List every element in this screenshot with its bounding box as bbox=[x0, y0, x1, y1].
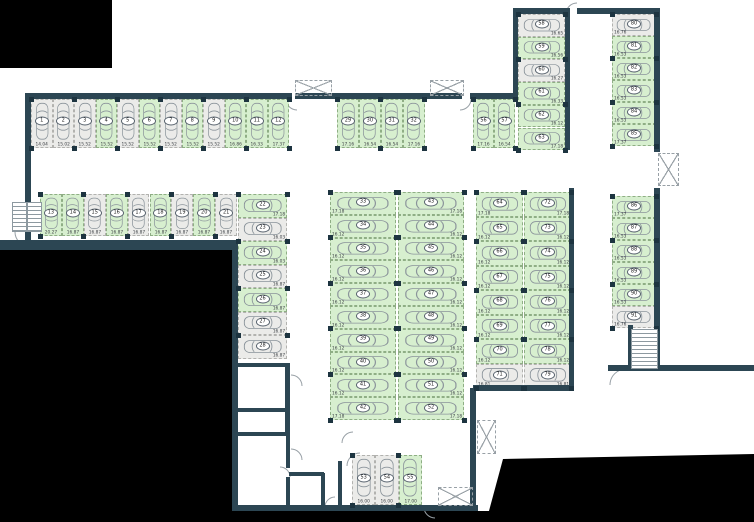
space-dimension: 16.53 bbox=[614, 74, 626, 79]
space-number: 57 bbox=[498, 117, 512, 126]
parking-space-91[interactable]: 9116.76 bbox=[612, 306, 656, 328]
structural-column bbox=[72, 97, 77, 102]
space-dimension: 16.12 bbox=[450, 232, 462, 237]
structural-column bbox=[396, 503, 401, 508]
parking-space-78[interactable]: 7816.12 bbox=[524, 339, 571, 364]
parking-space-28[interactable]: 2816.87 bbox=[238, 335, 287, 359]
parking-space-73[interactable]: 7316.12 bbox=[524, 217, 571, 242]
space-dimension: 16.87 bbox=[219, 230, 233, 235]
stairs-icon bbox=[12, 202, 27, 232]
parking-space-24[interactable]: 2416.03 bbox=[238, 241, 287, 265]
wall bbox=[654, 8, 660, 152]
parking-space-77[interactable]: 7716.12 bbox=[524, 315, 571, 340]
parking-space-43[interactable]: 4317.18 bbox=[398, 192, 464, 215]
structural-column bbox=[654, 12, 659, 17]
parking-space-32[interactable]: 3217.16 bbox=[403, 99, 425, 148]
parking-space-3[interactable]: 315.52 bbox=[74, 99, 96, 148]
space-dimension: 16.87 bbox=[273, 282, 285, 287]
parking-space-8[interactable]: 815.52 bbox=[182, 99, 204, 148]
space-dimension: 17.18 bbox=[273, 211, 285, 216]
structural-column bbox=[610, 282, 615, 287]
space-number: 70 bbox=[493, 346, 507, 355]
parking-space-1[interactable]: 114.04 bbox=[31, 99, 53, 148]
space-dimension: 17.18 bbox=[450, 209, 462, 214]
parking-space-29[interactable]: 2917.16 bbox=[337, 99, 359, 148]
space-number: 50 bbox=[424, 357, 438, 366]
space-number: 23 bbox=[256, 224, 270, 233]
wall bbox=[285, 363, 290, 436]
space-dimension: 17.16 bbox=[406, 142, 420, 147]
structural-column bbox=[287, 146, 292, 151]
structural-column bbox=[569, 337, 574, 342]
space-dimension: 15.52 bbox=[99, 142, 113, 147]
space-number: 4 bbox=[99, 117, 113, 126]
structural-column bbox=[350, 453, 355, 458]
parking-space-34[interactable]: 3416.12 bbox=[330, 215, 396, 238]
space-dimension: 16.00 bbox=[379, 499, 394, 504]
parking-space-27[interactable]: 2716.87 bbox=[238, 312, 287, 336]
parking-space-60[interactable]: 6016.27 bbox=[518, 59, 565, 82]
parking-space-4[interactable]: 415.52 bbox=[96, 99, 118, 148]
parking-space-64[interactable]: 6417.18 bbox=[476, 192, 523, 217]
parking-space-13[interactable]: 1320.27 bbox=[40, 194, 62, 236]
structural-column bbox=[474, 386, 479, 391]
structural-column bbox=[396, 453, 401, 458]
space-dimension: 16.87 bbox=[273, 352, 285, 357]
space-number: 13 bbox=[44, 209, 58, 218]
space-dimension: 16.12 bbox=[332, 232, 344, 237]
parking-space-21[interactable]: 2116.87 bbox=[215, 194, 237, 236]
parking-space-35[interactable]: 3516.12 bbox=[330, 238, 396, 261]
structural-column bbox=[522, 386, 527, 391]
space-number: 61 bbox=[535, 88, 549, 97]
wall bbox=[577, 8, 660, 14]
parking-space-16[interactable]: 1616.87 bbox=[106, 194, 128, 236]
parking-space-82[interactable]: 8216.53 bbox=[612, 58, 656, 80]
space-dimension: 16.12 bbox=[557, 284, 569, 289]
space-number: 27 bbox=[256, 318, 270, 327]
floor-plan: 114.04215.02315.52415.52515.52615.52715.… bbox=[0, 0, 754, 522]
structural-column bbox=[236, 286, 241, 291]
space-dimension: 16.53 bbox=[614, 118, 626, 123]
space-dimension: 16.54 bbox=[498, 142, 512, 147]
space-number: 6 bbox=[142, 117, 156, 126]
parking-space-7[interactable]: 715.52 bbox=[160, 99, 182, 148]
space-number: 49 bbox=[424, 335, 438, 344]
parking-space-48[interactable]: 4816.12 bbox=[398, 306, 464, 329]
parking-space-76[interactable]: 7616.12 bbox=[524, 290, 571, 315]
structural-column bbox=[328, 418, 333, 423]
space-number: 71 bbox=[493, 370, 507, 379]
structural-column bbox=[522, 190, 527, 195]
structural-column bbox=[462, 281, 467, 286]
space-dimension: 17.16 bbox=[477, 142, 491, 147]
space-number: 31 bbox=[385, 117, 399, 126]
parking-space-81[interactable]: 8116.53 bbox=[612, 36, 656, 58]
parking-space-6[interactable]: 615.52 bbox=[139, 99, 161, 148]
space-number: 25 bbox=[256, 271, 270, 280]
parking-space-22[interactable]: 2217.18 bbox=[238, 194, 287, 218]
space-dimension: 16.12 bbox=[478, 284, 490, 289]
space-number: 81 bbox=[627, 42, 641, 51]
space-number: 28 bbox=[256, 341, 270, 350]
space-number: 22 bbox=[256, 200, 270, 209]
shaft-icon bbox=[295, 80, 332, 96]
structural-column bbox=[516, 12, 521, 17]
structural-column bbox=[462, 235, 467, 240]
space-dimension: 16.12 bbox=[332, 300, 344, 305]
parking-space-83[interactable]: 8316.53 bbox=[612, 80, 656, 102]
structural-column bbox=[201, 97, 206, 102]
structural-column bbox=[335, 146, 340, 151]
space-number: 3 bbox=[78, 117, 92, 126]
structural-column bbox=[328, 372, 333, 377]
door-arc bbox=[460, 99, 471, 110]
structural-column bbox=[462, 190, 467, 195]
space-dimension: 16.87 bbox=[66, 230, 80, 235]
parking-space-84[interactable]: 8416.53 bbox=[612, 102, 656, 124]
space-dimension: 15.02 bbox=[56, 142, 70, 147]
parking-space-80[interactable]: 8016.76 bbox=[612, 14, 656, 36]
parking-space-45[interactable]: 4516.12 bbox=[398, 238, 464, 261]
space-number: 46 bbox=[424, 266, 438, 275]
parking-space-30[interactable]: 3016.54 bbox=[359, 99, 381, 148]
space-number: 51 bbox=[424, 380, 438, 389]
space-number: 14 bbox=[66, 209, 80, 218]
structural-column bbox=[244, 97, 249, 102]
parking-space-38[interactable]: 3816.12 bbox=[330, 306, 396, 329]
space-number: 7 bbox=[164, 117, 178, 126]
structural-column bbox=[654, 144, 659, 149]
parking-space-54[interactable]: 5416.00 bbox=[375, 455, 398, 505]
space-number: 59 bbox=[535, 42, 549, 51]
space-number: 26 bbox=[256, 294, 270, 303]
space-dimension: 16.76 bbox=[614, 322, 626, 327]
door-arc bbox=[291, 375, 302, 386]
structural-column bbox=[350, 503, 355, 508]
parking-space-87[interactable]: 8716.53 bbox=[612, 218, 656, 240]
space-dimension: 16.54 bbox=[385, 142, 399, 147]
space-dimension: 17.37 bbox=[614, 212, 626, 217]
structural-column bbox=[328, 190, 333, 195]
structural-column bbox=[610, 100, 615, 105]
parking-space-52[interactable]: 5217.18 bbox=[398, 397, 464, 420]
structural-column bbox=[462, 418, 467, 423]
space-number: 20 bbox=[197, 209, 211, 218]
parking-space-14[interactable]: 1416.87 bbox=[62, 194, 84, 236]
wall bbox=[237, 363, 287, 367]
space-dimension: 16.12 bbox=[450, 254, 462, 259]
door-arc bbox=[610, 369, 626, 385]
space-number: 64 bbox=[493, 199, 507, 208]
structural-column bbox=[569, 190, 574, 195]
shaft-icon bbox=[658, 153, 679, 186]
structural-column bbox=[38, 192, 43, 197]
space-dimension: 16.56 bbox=[551, 53, 563, 58]
structural-column bbox=[115, 97, 120, 102]
structural-column bbox=[654, 56, 659, 61]
parking-space-67[interactable]: 6716.12 bbox=[476, 266, 523, 291]
structural-column bbox=[610, 12, 615, 17]
space-number: 2 bbox=[56, 117, 70, 126]
parking-space-49[interactable]: 4916.12 bbox=[398, 329, 464, 352]
structural-column bbox=[72, 146, 77, 151]
space-dimension: 16.12 bbox=[557, 333, 569, 338]
parking-space-59[interactable]: 5916.56 bbox=[518, 37, 565, 60]
structural-column bbox=[158, 146, 163, 151]
structural-column bbox=[244, 146, 249, 151]
wall bbox=[513, 8, 518, 99]
parking-space-44[interactable]: 4416.12 bbox=[398, 215, 464, 238]
parking-space-88[interactable]: 8816.53 bbox=[612, 240, 656, 262]
space-number: 39 bbox=[356, 335, 370, 344]
parking-space-42[interactable]: 4217.18 bbox=[330, 397, 396, 420]
parking-space-68[interactable]: 6816.12 bbox=[476, 290, 523, 315]
parking-space-53[interactable]: 5316.00 bbox=[352, 455, 375, 505]
parking-space-15[interactable]: 1516.87 bbox=[84, 194, 106, 236]
space-number: 55 bbox=[403, 473, 417, 482]
space-number: 8 bbox=[185, 117, 199, 126]
space-dimension: 16.12 bbox=[450, 277, 462, 282]
parking-space-75[interactable]: 7516.12 bbox=[524, 266, 571, 291]
space-dimension: 16.54 bbox=[363, 142, 377, 147]
void-area bbox=[486, 454, 754, 522]
structural-column bbox=[236, 333, 241, 338]
parking-space-26[interactable]: 2616.87 bbox=[238, 288, 287, 312]
parking-space-9[interactable]: 915.52 bbox=[203, 99, 225, 148]
space-number: 84 bbox=[627, 108, 641, 117]
structural-column bbox=[516, 57, 521, 62]
parking-space-18[interactable]: 1816.87 bbox=[150, 194, 172, 236]
space-number: 78 bbox=[541, 346, 555, 355]
parking-space-25[interactable]: 2516.87 bbox=[238, 265, 287, 289]
parking-space-51[interactable]: 5116.12 bbox=[398, 374, 464, 397]
structural-column bbox=[236, 192, 241, 197]
parking-space-57[interactable]: 5716.54 bbox=[494, 99, 515, 148]
structural-column bbox=[462, 372, 467, 377]
space-dimension: 16.03 bbox=[273, 258, 285, 263]
space-dimension: 20.27 bbox=[44, 230, 58, 235]
space-dimension: 16.53 bbox=[614, 278, 626, 283]
parking-space-17[interactable]: 1716.87 bbox=[128, 194, 150, 236]
structural-column bbox=[335, 97, 340, 102]
space-number: 87 bbox=[627, 224, 641, 233]
space-number: 10 bbox=[228, 117, 242, 126]
space-dimension: 16.12 bbox=[332, 277, 344, 282]
parking-space-85[interactable]: 8517.37 bbox=[612, 124, 656, 146]
parking-space-56[interactable]: 5617.16 bbox=[473, 99, 494, 148]
parking-space-70[interactable]: 7016.12 bbox=[476, 339, 523, 364]
parking-space-39[interactable]: 3916.12 bbox=[330, 329, 396, 352]
space-number: 76 bbox=[541, 297, 555, 306]
structural-column bbox=[328, 326, 333, 331]
structural-column bbox=[396, 372, 401, 377]
structural-column bbox=[471, 146, 476, 151]
space-dimension: 16.12 bbox=[332, 368, 344, 373]
structural-column bbox=[516, 148, 521, 153]
space-number: 37 bbox=[356, 289, 370, 298]
space-dimension: 16.12 bbox=[557, 357, 569, 362]
space-dimension: 16.12 bbox=[450, 368, 462, 373]
parking-space-72[interactable]: 7217.18 bbox=[524, 192, 571, 217]
space-dimension: 16.33 bbox=[250, 142, 264, 147]
space-dimension: 17.18 bbox=[332, 209, 344, 214]
space-dimension: 16.12 bbox=[557, 308, 569, 313]
space-number: 30 bbox=[363, 117, 377, 126]
parking-space-33[interactable]: 3317.18 bbox=[330, 192, 396, 215]
space-dimension: 16.12 bbox=[450, 300, 462, 305]
space-number: 74 bbox=[541, 248, 555, 257]
space-dimension: 17.18 bbox=[332, 414, 344, 419]
parking-space-55[interactable]: 5517.00 bbox=[399, 455, 422, 505]
structural-column bbox=[396, 418, 401, 423]
space-dimension: 16.53 bbox=[614, 256, 626, 261]
structural-column bbox=[563, 12, 568, 17]
structural-column bbox=[285, 192, 290, 197]
space-number: 80 bbox=[627, 20, 641, 29]
structural-column bbox=[287, 97, 292, 102]
parking-space-23[interactable]: 2316.03 bbox=[238, 218, 287, 242]
space-number: 89 bbox=[627, 268, 641, 277]
space-dimension: 16.87 bbox=[153, 230, 167, 235]
space-dimension: 17.37 bbox=[614, 140, 626, 145]
shaft-icon bbox=[438, 487, 473, 506]
space-dimension: 17.18 bbox=[478, 210, 490, 215]
space-number: 54 bbox=[380, 473, 394, 482]
parking-space-62[interactable]: 6216.12 bbox=[518, 105, 565, 128]
space-dimension: 16.12 bbox=[557, 235, 569, 240]
space-dimension: 16.87 bbox=[131, 230, 145, 235]
space-dimension: 16.12 bbox=[551, 121, 563, 126]
structural-column bbox=[474, 288, 479, 293]
space-number: 85 bbox=[627, 130, 641, 139]
parking-space-50[interactable]: 5016.12 bbox=[398, 352, 464, 375]
space-dimension: 16.12 bbox=[557, 259, 569, 264]
space-number: 77 bbox=[541, 321, 555, 330]
parking-space-58[interactable]: 5816.65 bbox=[518, 14, 565, 37]
space-number: 75 bbox=[541, 272, 555, 281]
space-number: 29 bbox=[341, 117, 355, 126]
space-number: 18 bbox=[153, 209, 167, 218]
parking-space-10[interactable]: 1016.86 bbox=[225, 99, 247, 148]
structural-column bbox=[396, 281, 401, 286]
parking-space-86[interactable]: 8617.37 bbox=[612, 196, 656, 218]
space-dimension: 16.12 bbox=[478, 235, 490, 240]
space-dimension: 16.87 bbox=[175, 230, 189, 235]
wall bbox=[608, 365, 754, 371]
parking-space-65[interactable]: 6516.12 bbox=[476, 217, 523, 242]
space-number: 52 bbox=[424, 403, 438, 412]
parking-space-37[interactable]: 3716.12 bbox=[330, 283, 396, 306]
parking-space-12[interactable]: 1217.37 bbox=[268, 99, 290, 148]
parking-space-36[interactable]: 3616.12 bbox=[330, 260, 396, 283]
parking-space-2[interactable]: 215.02 bbox=[53, 99, 75, 148]
space-dimension: 16.87 bbox=[197, 230, 211, 235]
space-number: 24 bbox=[256, 247, 270, 256]
space-dimension: 16.65 bbox=[551, 31, 563, 36]
space-number: 88 bbox=[627, 246, 641, 255]
structural-column bbox=[81, 192, 86, 197]
space-dimension: 15.52 bbox=[185, 142, 199, 147]
space-dimension: 16.12 bbox=[450, 323, 462, 328]
space-dimension: 16.12 bbox=[332, 391, 344, 396]
structural-column bbox=[285, 239, 290, 244]
parking-space-20[interactable]: 2016.87 bbox=[193, 194, 215, 236]
structural-column bbox=[169, 192, 174, 197]
space-dimension: 16.12 bbox=[332, 323, 344, 328]
space-number: 79 bbox=[541, 370, 555, 379]
space-number: 45 bbox=[424, 243, 438, 252]
parking-space-90[interactable]: 9016.53 bbox=[612, 284, 656, 306]
wall bbox=[289, 472, 324, 476]
space-number: 72 bbox=[541, 199, 555, 208]
space-dimension: 16.53 bbox=[614, 52, 626, 57]
structural-column bbox=[471, 97, 476, 102]
space-number: 44 bbox=[424, 221, 438, 230]
space-dimension: 16.12 bbox=[450, 391, 462, 396]
parking-space-69[interactable]: 6916.12 bbox=[476, 315, 523, 340]
parking-space-19[interactable]: 1916.87 bbox=[171, 194, 193, 236]
space-dimension: 16.12 bbox=[332, 346, 344, 351]
space-dimension: 16.12 bbox=[478, 259, 490, 264]
structural-column bbox=[569, 288, 574, 293]
space-number: 36 bbox=[356, 266, 370, 275]
structural-column bbox=[654, 282, 659, 287]
structural-column bbox=[328, 281, 333, 286]
space-number: 90 bbox=[627, 290, 641, 299]
space-number: 53 bbox=[357, 473, 371, 482]
structural-column bbox=[125, 234, 130, 239]
space-dimension: 16.27 bbox=[551, 76, 563, 81]
parking-space-74[interactable]: 7416.12 bbox=[524, 241, 571, 266]
structural-column bbox=[474, 337, 479, 342]
structural-column bbox=[422, 146, 427, 151]
structural-column bbox=[569, 386, 574, 391]
parking-space-46[interactable]: 4616.12 bbox=[398, 260, 464, 283]
structural-column bbox=[328, 235, 333, 240]
space-dimension: 17.16 bbox=[341, 142, 355, 147]
space-number: 38 bbox=[356, 312, 370, 321]
space-number: 73 bbox=[541, 223, 555, 232]
parking-space-66[interactable]: 6616.12 bbox=[476, 241, 523, 266]
space-number: 11 bbox=[250, 117, 264, 126]
parking-space-47[interactable]: 4716.12 bbox=[398, 283, 464, 306]
space-number: 34 bbox=[356, 221, 370, 230]
parking-space-61[interactable]: 6116.33 bbox=[518, 82, 565, 105]
parking-space-63[interactable]: 6317.18 bbox=[518, 128, 565, 151]
structural-column bbox=[563, 102, 568, 107]
structural-column bbox=[81, 234, 86, 239]
parking-space-11[interactable]: 1116.33 bbox=[246, 99, 268, 148]
space-number: 9 bbox=[207, 117, 221, 126]
space-dimension: 17.18 bbox=[551, 144, 563, 149]
structural-column bbox=[610, 238, 615, 243]
space-dimension: 16.12 bbox=[450, 346, 462, 351]
parking-space-5[interactable]: 515.52 bbox=[117, 99, 139, 148]
parking-space-89[interactable]: 8916.53 bbox=[612, 262, 656, 284]
structural-column bbox=[396, 235, 401, 240]
space-dimension: 17.18 bbox=[450, 414, 462, 419]
parking-space-41[interactable]: 4116.12 bbox=[330, 374, 396, 397]
space-dimension: 16.12 bbox=[478, 333, 490, 338]
structural-column bbox=[125, 192, 130, 197]
parking-space-31[interactable]: 3116.54 bbox=[381, 99, 403, 148]
parking-space-40[interactable]: 4016.12 bbox=[330, 352, 396, 375]
wall bbox=[470, 93, 518, 99]
wall bbox=[286, 477, 290, 511]
structural-column bbox=[610, 56, 615, 61]
structural-column bbox=[563, 57, 568, 62]
